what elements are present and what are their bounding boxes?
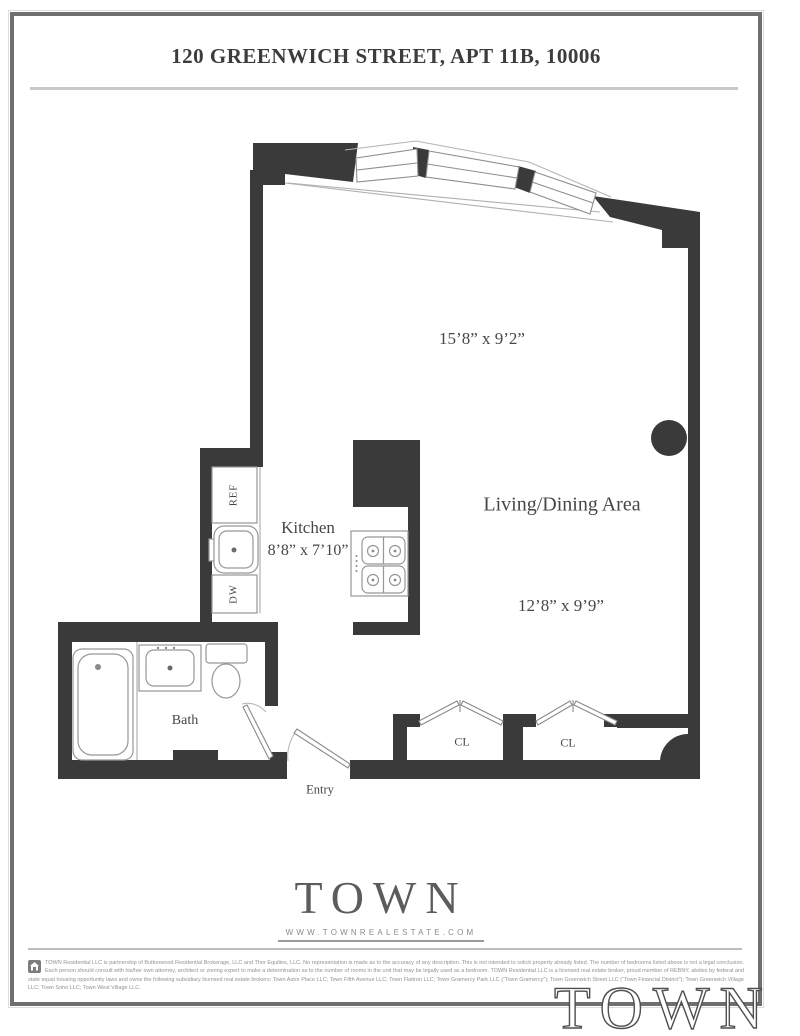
- dishwasher-label: DW: [229, 584, 240, 604]
- living-dining-label: Living/Dining Area: [483, 494, 640, 517]
- refrigerator-label: REF: [229, 484, 240, 506]
- kitchen-sink-icon: [209, 526, 258, 573]
- entry-label: Entry: [306, 783, 334, 798]
- kitchen-label: Kitchen: [281, 518, 335, 538]
- toilet-icon: [206, 644, 247, 698]
- stove-icon: [351, 531, 408, 596]
- bath-fixtures: [73, 642, 247, 760]
- closet-left-label: CL: [454, 735, 469, 750]
- town-website: WWW.TOWNREALESTATE.COM: [278, 928, 485, 942]
- dimension-label-top: 15’8” x 9’2”: [439, 329, 525, 349]
- bath-sink-icon: [139, 645, 201, 691]
- bathtub-icon: [73, 649, 133, 760]
- town-watermark: TOWN: [552, 978, 800, 1036]
- floor-plan-page: 120 GREENWICH STREET, APT 11B, 10006: [0, 0, 800, 1036]
- dimension-label-living: 12’8” x 9’9”: [518, 596, 604, 616]
- town-logo-text: TOWN: [0, 874, 762, 922]
- doors: [242, 700, 617, 768]
- town-logo: TOWN WWW.TOWNREALESTATE.COM: [0, 874, 762, 942]
- bath-label: Bath: [172, 713, 198, 729]
- footer-divider: [28, 948, 742, 950]
- closet-right-label: CL: [560, 736, 575, 751]
- town-watermark-text: TOWN: [554, 978, 773, 1036]
- equal-housing-icon: [28, 960, 41, 973]
- dimension-label-kitchen: 8’8” x 7’10”: [268, 542, 349, 560]
